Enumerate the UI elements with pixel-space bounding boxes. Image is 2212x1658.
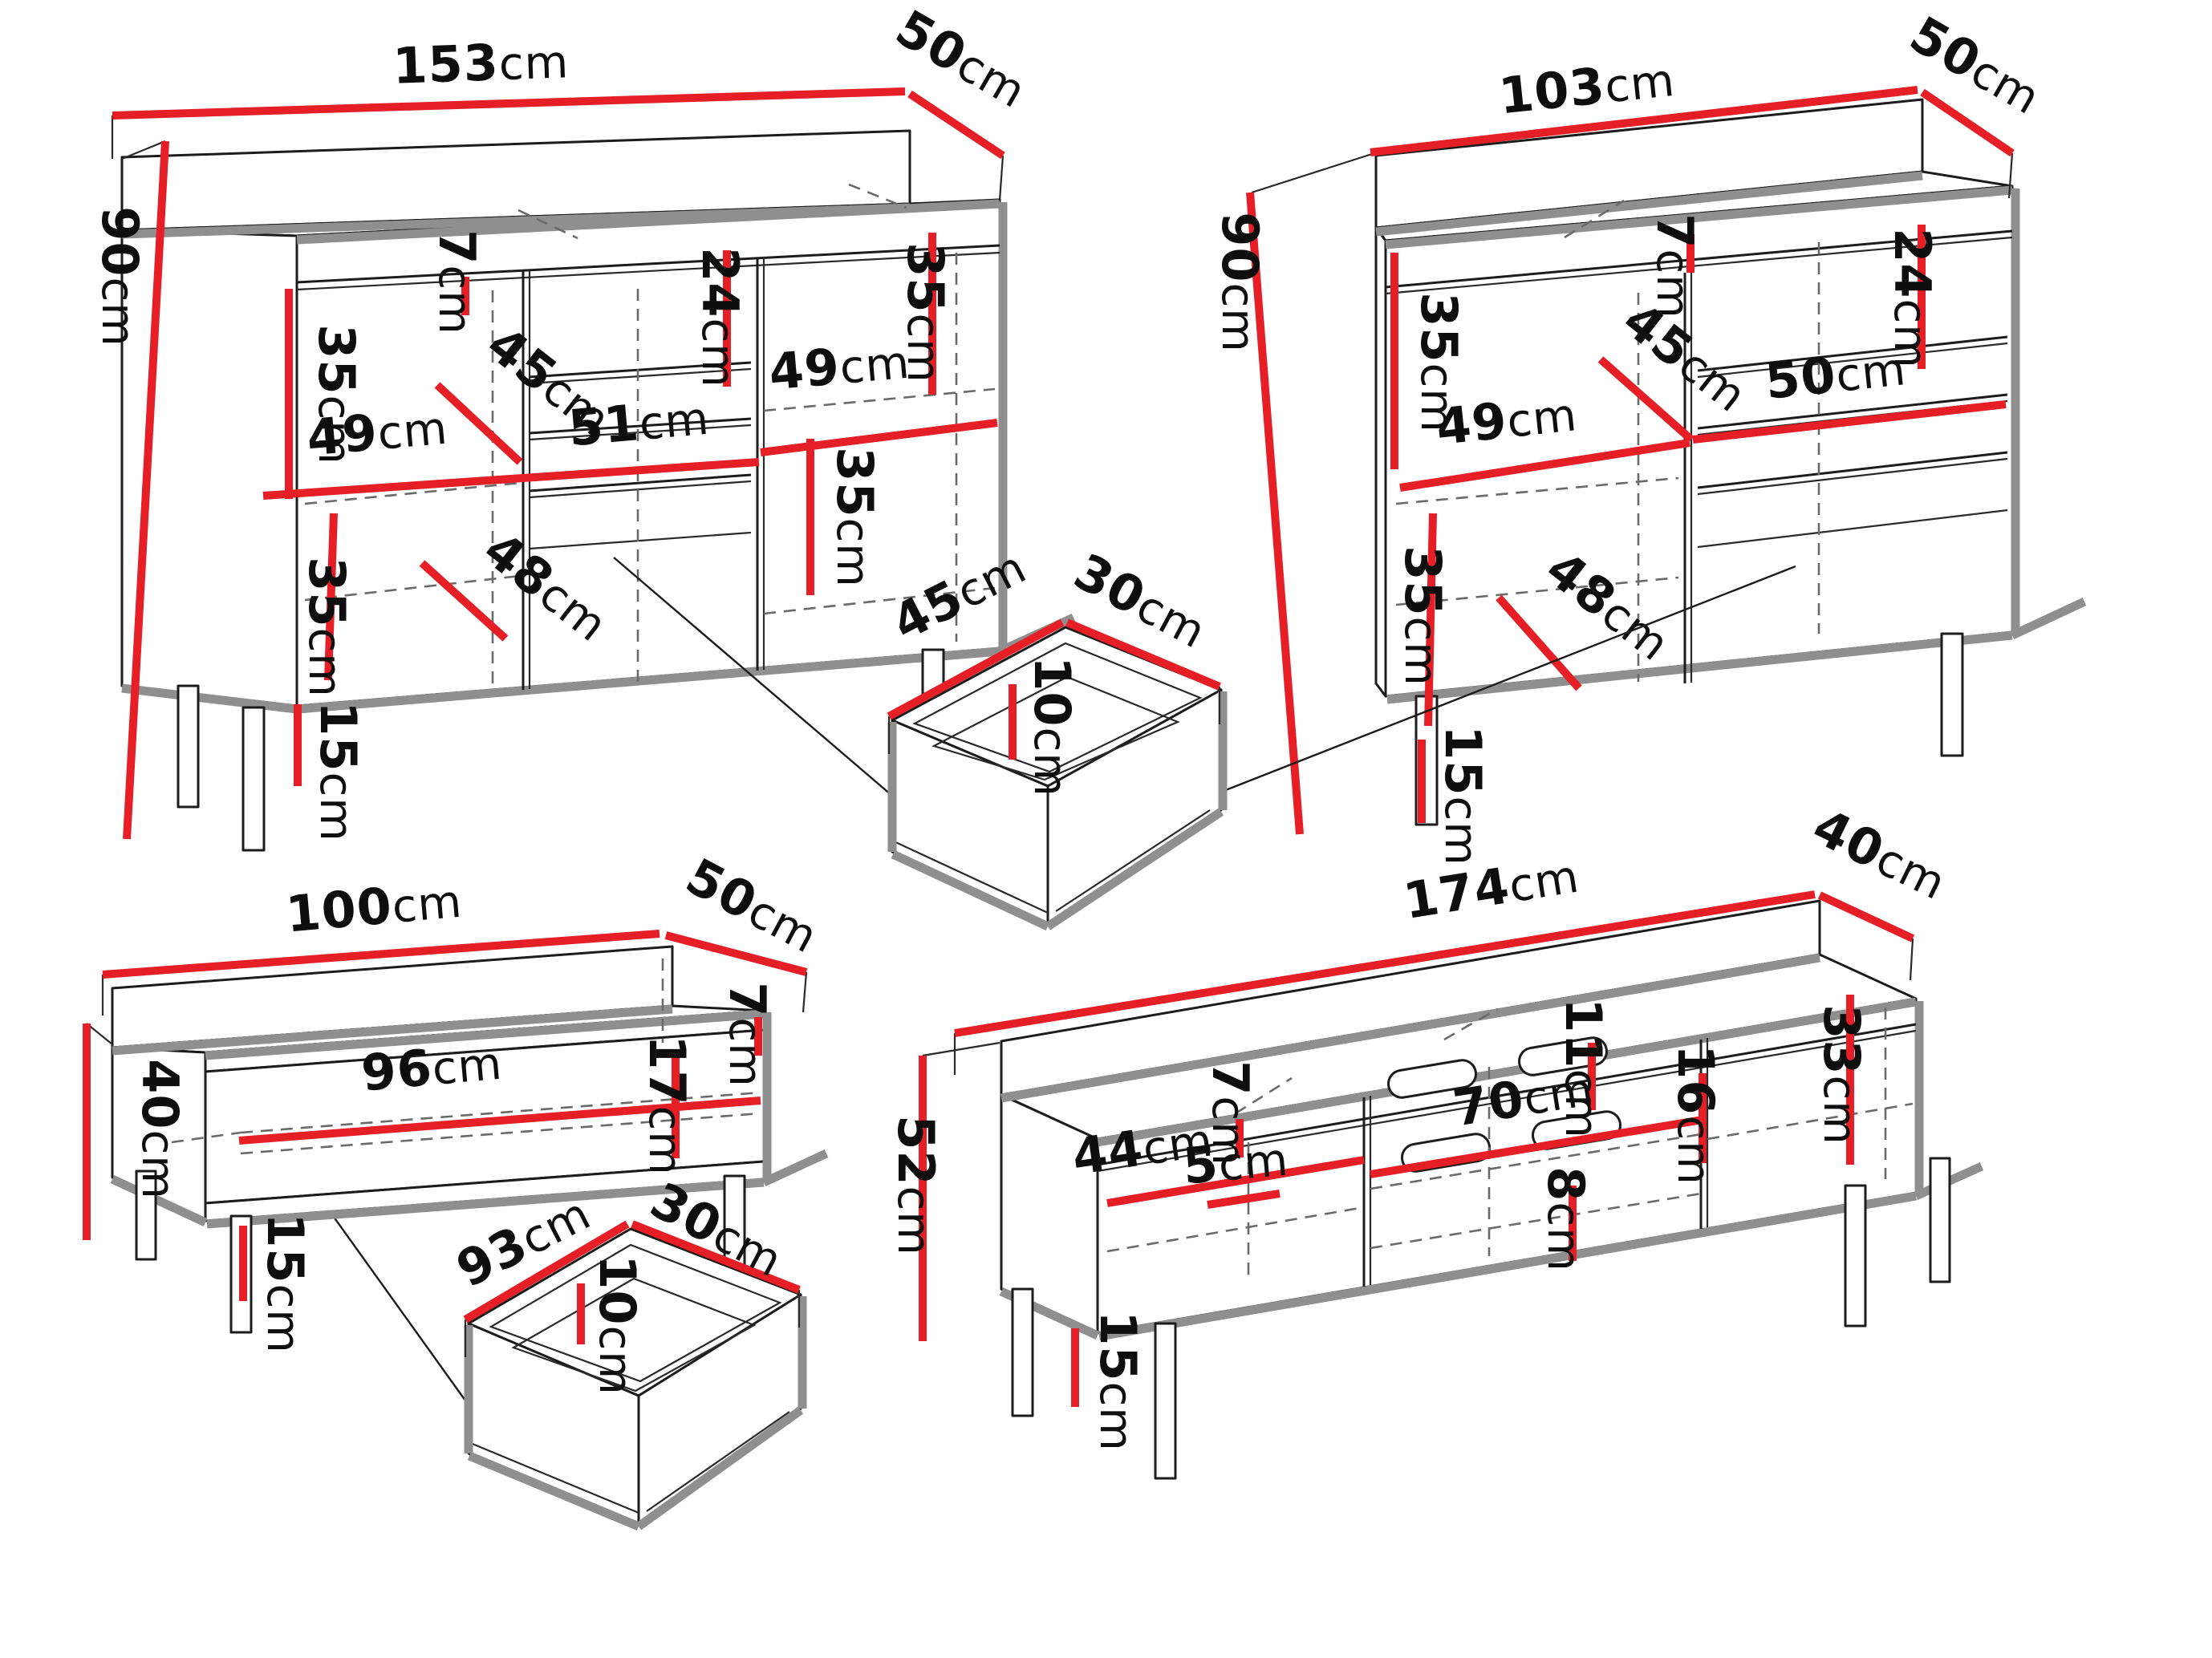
dim-label-legs: 15cm [1089, 1311, 1147, 1452]
leg [1942, 634, 1962, 756]
dim-label-legs: 15cm [309, 701, 367, 842]
dim-label-shelf-top-right: 35cm [896, 242, 955, 383]
diagram-svg: 153cm 50cm 90cm 7cm 35cm 45cm 49cm 51cm … [0, 0, 2212, 1658]
dim-label-shelf-low-left: 35cm [298, 557, 356, 698]
dim-label-bottom-gap: 5cm [1180, 1128, 1290, 1195]
tick [1910, 938, 1913, 980]
dim-label-top-rail: 7cm [428, 229, 486, 334]
drawer-45: 45cm 30cm 10cm [883, 536, 1223, 926]
left-side-face [1376, 228, 1386, 696]
dim-label-top-drawer: 24cm [1883, 228, 1942, 369]
dim-label-width: 174cm [1399, 845, 1582, 930]
dim-label-legs: 15cm [256, 1213, 315, 1354]
dim-label-right-door-height: 33cm [1812, 1004, 1871, 1145]
leg [1013, 1289, 1033, 1416]
dim-label-depth: 40cm [1804, 797, 1956, 911]
dim-label-shelf-low-left: 35cm [1394, 545, 1452, 687]
shadow-edge [764, 1153, 826, 1182]
dim-line-depth [1820, 895, 1913, 938]
dim-label-slot-mid: 16cm [1666, 1044, 1725, 1186]
dim-label-width: 153cm [392, 30, 570, 95]
tick [1000, 156, 1003, 201]
dim-label-depth: 50cm [886, 0, 1037, 120]
dim-label-height: 90cm [1211, 212, 1269, 353]
dim-label-slot-top: 11cm [1554, 998, 1613, 1139]
tick [1252, 154, 1372, 193]
dim-label-height: 52cm [887, 1115, 945, 1256]
dim-label-inner-height: 17cm [638, 1035, 696, 1176]
dim-label-slot-bottom: 8cm [1536, 1166, 1595, 1271]
leg [243, 707, 264, 850]
dim-label-shelf-low-right: 35cm [826, 447, 884, 588]
drawer-93: 93cm 30cm 10cm [447, 1171, 802, 1526]
dim-label-top-drawer: 24cm [691, 247, 749, 388]
furniture-dimensions-diagram: 153cm 50cm 90cm 7cm 35cm 45cm 49cm 51cm … [0, 0, 2212, 1658]
dim-label-height: 40cm [131, 1059, 189, 1200]
leg [1930, 1158, 1950, 1282]
leg [1155, 1324, 1175, 1478]
dim-label-legs: 15cm [1434, 725, 1492, 866]
dim-label-width: 103cm [1496, 49, 1678, 126]
tick [803, 972, 806, 1012]
sideboard-103: 103cm 50cm 90cm 7cm 35cm 45cm 49cm 50cm … [1211, 5, 2084, 866]
shadow-edge [2012, 602, 2084, 635]
dim-line-width [112, 91, 905, 116]
dim-label-height: 10cm [588, 1255, 647, 1396]
dim-label-height: 10cm [1023, 656, 1082, 797]
dim-label-height: 90cm [91, 206, 149, 347]
tick [923, 1043, 1000, 1056]
dim-label-top-rail: 7cm [718, 982, 777, 1087]
leg [178, 686, 198, 807]
dim-label-width: 100cm [283, 870, 464, 944]
leg [1845, 1186, 1865, 1326]
